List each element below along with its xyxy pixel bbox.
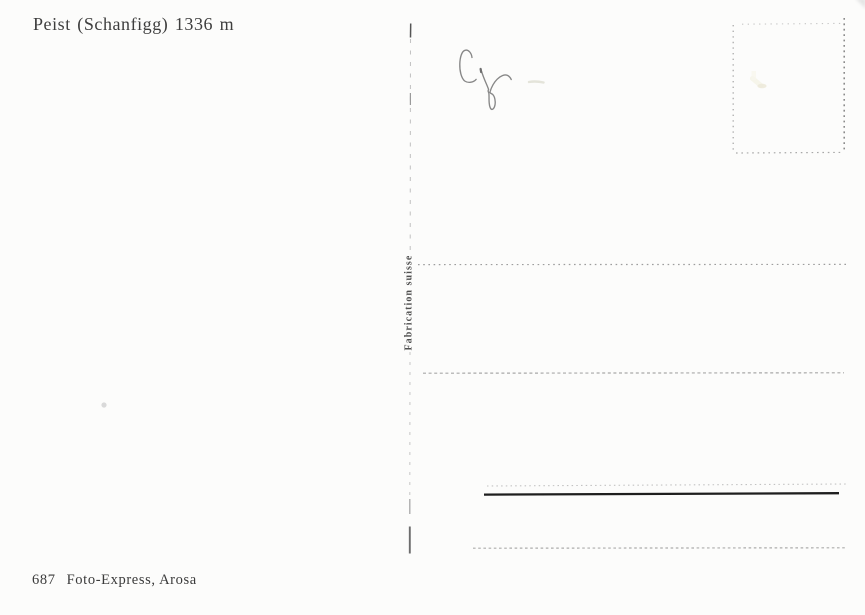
- svg-text:Fabrication suisse: Fabrication suisse: [404, 255, 415, 351]
